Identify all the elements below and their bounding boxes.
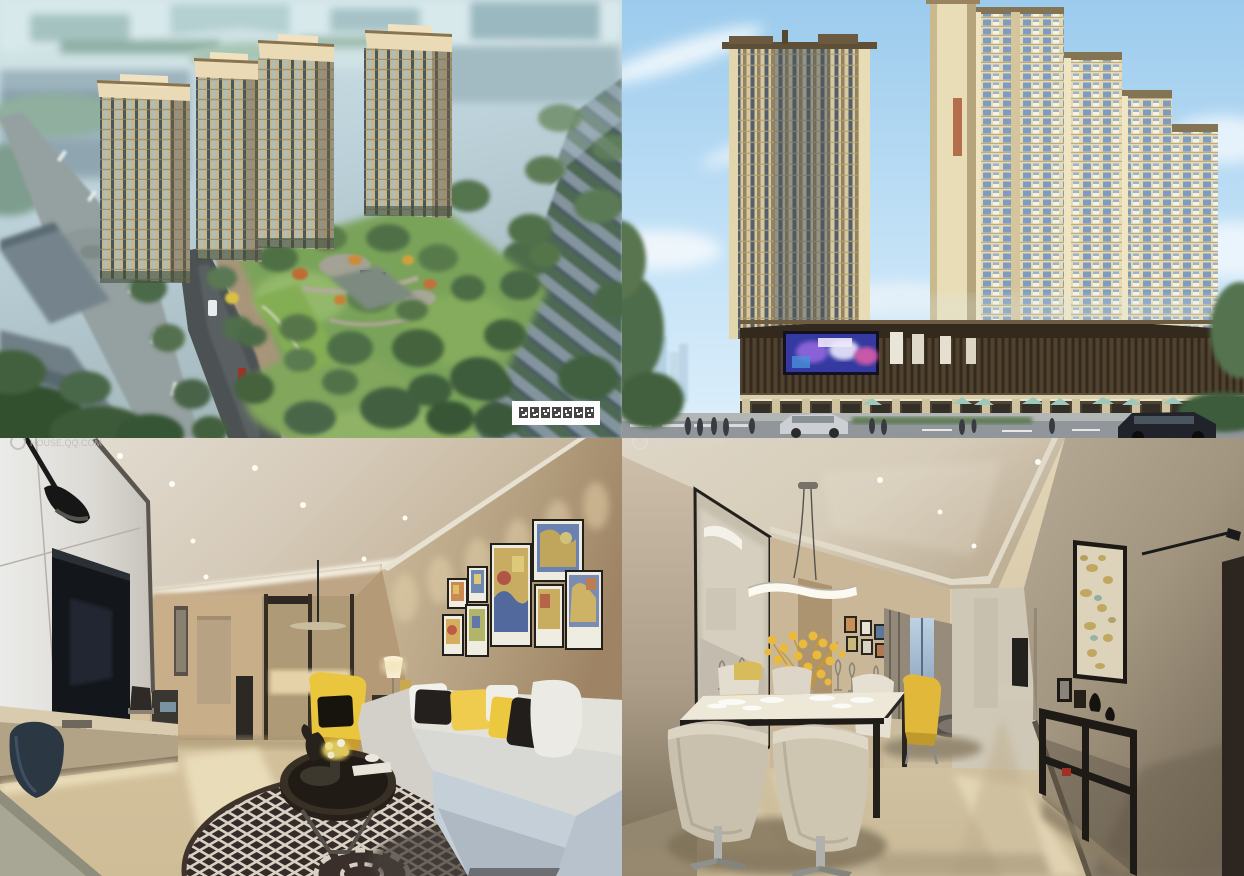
svg-text:HOUSE.QQ.COM: HOUSE.QQ.COM xyxy=(30,438,102,448)
svg-text:HOUSE.QQ.COM: HOUSE.QQ.COM xyxy=(652,438,724,448)
